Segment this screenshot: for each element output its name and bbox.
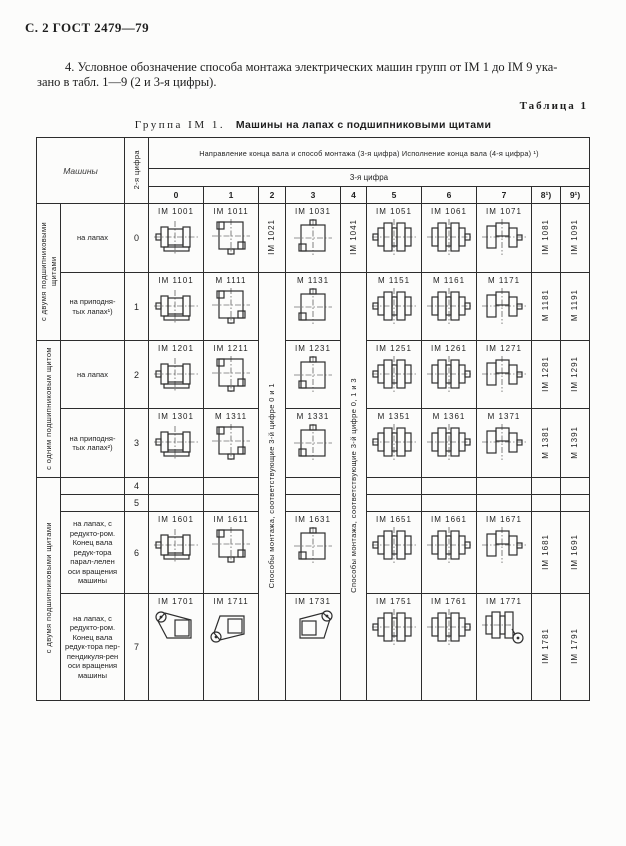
- im-cell: IM 1251: [367, 341, 422, 409]
- im-cell: IM 1061: [422, 204, 477, 273]
- motor-c-icon: [286, 422, 340, 462]
- motor-e-icon: [422, 286, 476, 326]
- row-desc-cell: на лапах, с редукто-ром. Конец вала реду…: [61, 594, 125, 701]
- im-code: IM 1791: [570, 628, 580, 664]
- im-code: IM 1601: [149, 515, 203, 524]
- im-code: IM 1671: [477, 515, 531, 524]
- table-title-prefix: Группа IM 1.: [135, 119, 225, 131]
- im-cell: IM 1211: [204, 341, 259, 409]
- motor-a-icon: [149, 525, 203, 565]
- im-cell: M 1371: [477, 409, 532, 478]
- im-code: IM 1001: [149, 207, 203, 216]
- row-digit-cell: 6: [125, 512, 149, 594]
- machine-group-label: с двумя подшипниковыми щитами: [39, 208, 59, 334]
- im-code: M 1151: [367, 276, 421, 285]
- motor-d-icon: [367, 217, 421, 257]
- im-code: M 1111: [204, 276, 258, 285]
- motor-e-icon: [422, 217, 476, 257]
- im-cell: IM 1771: [477, 594, 532, 701]
- table-row: с одним подшипниковым щитомна лапах2IM 1…: [37, 341, 590, 409]
- im-cell: M 1111: [204, 273, 259, 341]
- im-cell: M 1171: [477, 273, 532, 341]
- im-code: M 1191: [570, 289, 580, 321]
- im-code: IM 1091: [570, 219, 580, 255]
- corner-header: Машины: [37, 138, 125, 204]
- gear-d-icon: [477, 607, 531, 647]
- intro-paragraph-line1: 4. Условное обозначение способа монтажа …: [65, 60, 557, 74]
- motor-a-icon: [149, 354, 203, 394]
- im-cell: M 1151: [367, 273, 422, 341]
- motor-b-icon: [204, 354, 258, 394]
- im-cell: IM 1031: [286, 204, 341, 273]
- span-header: Направление конца вала и способ монтажа …: [149, 138, 590, 169]
- im-code: IM 1281: [541, 356, 551, 392]
- table-row: с двумя подшипниковыми щитамина лапах0IM…: [37, 204, 590, 273]
- motor-d-icon: [367, 607, 421, 647]
- motor-d-icon: [367, 525, 421, 565]
- im-code: M 1381: [541, 426, 551, 459]
- motor-e-icon: [422, 607, 476, 647]
- digit-col-header-text: 2-я цифра: [132, 150, 142, 189]
- im-cell: [204, 495, 259, 512]
- im-cell: IM 1761: [422, 594, 477, 701]
- im-code: IM 1301: [149, 412, 203, 421]
- motor-c-icon: [286, 217, 340, 257]
- im-code: M 1331: [286, 412, 340, 421]
- im-code: IM 1611: [204, 515, 258, 524]
- im-code: IM 1201: [149, 344, 203, 353]
- im-code: IM 1711: [204, 597, 258, 606]
- im-cell: IM 1201: [149, 341, 204, 409]
- im-cell: IM 1661: [422, 512, 477, 594]
- motor-d-icon: [367, 286, 421, 326]
- motor-c-icon: [286, 286, 340, 326]
- im-cell: IM 1691: [561, 512, 590, 594]
- im-code: IM 1631: [286, 515, 340, 524]
- row-desc: на лапах: [77, 370, 108, 379]
- im-cell: IM 1271: [477, 341, 532, 409]
- mounting-note: Способы монтажа, соответствующие 3-й циф…: [267, 383, 277, 588]
- row-desc: на лапах, с редукто-ром. Конец вала реду…: [65, 614, 120, 680]
- im-code: IM 1041: [349, 219, 359, 255]
- motor-a-icon: [149, 286, 203, 326]
- machine-group-cell: с двумя подшипниковыми щитами: [37, 204, 61, 341]
- im-code: IM 1231: [286, 344, 340, 353]
- mounting-table: Машины 2-я цифра Направление конца вала …: [36, 137, 590, 701]
- row-digit: 3: [134, 438, 139, 448]
- row-desc-cell: [61, 495, 125, 512]
- im-cell: IM 1711: [204, 594, 259, 701]
- mounting-note-cell: Способы монтажа, соответствующие 3-й циф…: [341, 273, 367, 701]
- im-cell: IM 1301: [149, 409, 204, 478]
- im-cell: M 1381: [532, 409, 561, 478]
- table-row: на приподня-тых лапах¹)1IM 1101M 1111Спо…: [37, 273, 590, 341]
- im-code: IM 1691: [570, 534, 580, 570]
- im-code: M 1311: [204, 412, 258, 421]
- im-code: IM 1781: [541, 628, 551, 664]
- im-cell: M 1161: [422, 273, 477, 341]
- im-cell: M 1351: [367, 409, 422, 478]
- table-body: Машины 2-я цифра Направление конца вала …: [37, 138, 590, 701]
- digit-col-header: 2-я цифра: [125, 138, 149, 204]
- im-code-cell: IM 1021: [259, 204, 286, 273]
- im-code: IM 1061: [422, 207, 476, 216]
- im-code: IM 1021: [267, 219, 277, 255]
- motor-d-icon: [367, 354, 421, 394]
- motor-a-icon: [149, 422, 203, 462]
- im-code: IM 1751: [367, 597, 421, 606]
- machine-group-label: с двумя подшипниковыми щитами: [44, 522, 54, 653]
- im-cell: IM 1091: [561, 204, 590, 273]
- im-cell: IM 1631: [286, 512, 341, 594]
- im-cell: IM 1731: [286, 594, 341, 701]
- im-cell: IM 1051: [367, 204, 422, 273]
- col-number: 9¹): [561, 187, 590, 204]
- col-number: 4: [341, 187, 367, 204]
- row-desc-cell: на приподня-тых лапах²): [61, 409, 125, 478]
- im-cell: [532, 478, 561, 495]
- im-code: M 1161: [422, 276, 476, 285]
- im-code: IM 1031: [286, 207, 340, 216]
- table-row: на лапах, с редукто-ром. Конец вала реду…: [37, 594, 590, 701]
- im-cell: M 1391: [561, 409, 590, 478]
- im-cell: [477, 478, 532, 495]
- im-cell: IM 1681: [532, 512, 561, 594]
- row-digit-cell: 5: [125, 495, 149, 512]
- im-code: IM 1761: [422, 597, 476, 606]
- row-digit-cell: 3: [125, 409, 149, 478]
- motor-b-icon: [204, 217, 258, 257]
- row-digit-cell: 7: [125, 594, 149, 701]
- im-cell: [286, 495, 341, 512]
- gear-a-icon: [149, 607, 203, 647]
- row-desc: на лапах: [77, 233, 108, 242]
- motor-f-icon: [477, 286, 531, 326]
- table-title-main: Машины на лапах с подшипниковыми щитами: [236, 119, 491, 131]
- im-cell: IM 1671: [477, 512, 532, 594]
- im-cell: IM 1611: [204, 512, 259, 594]
- row-desc: на лапах, с редукто-ром. Конец вала реду…: [68, 519, 117, 585]
- im-cell: IM 1701: [149, 594, 204, 701]
- im-cell: IM 1651: [367, 512, 422, 594]
- row-digit: 2: [134, 370, 139, 380]
- col-number: 2: [259, 187, 286, 204]
- im-code: IM 1701: [149, 597, 203, 606]
- im-cell: IM 1601: [149, 512, 204, 594]
- im-cell: IM 1081: [532, 204, 561, 273]
- im-cell: IM 1291: [561, 341, 590, 409]
- col-number: 3: [286, 187, 341, 204]
- im-cell: IM 1001: [149, 204, 204, 273]
- col-number: 7: [477, 187, 532, 204]
- machine-group-label: с одним подшипниковым щитом: [44, 347, 54, 470]
- im-cell: M 1361: [422, 409, 477, 478]
- im-cell: IM 1751: [367, 594, 422, 701]
- im-cell: [422, 495, 477, 512]
- im-code: IM 1651: [367, 515, 421, 524]
- im-code-cell: IM 1041: [341, 204, 367, 273]
- im-cell: [532, 495, 561, 512]
- motor-b-icon: [204, 422, 258, 462]
- row-desc-cell: на лапах: [61, 341, 125, 409]
- header-row-1: Машины 2-я цифра Направление конца вала …: [37, 138, 590, 169]
- im-cell: IM 1281: [532, 341, 561, 409]
- row-desc-cell: на лапах: [61, 204, 125, 273]
- im-code: M 1131: [286, 276, 340, 285]
- row-desc: на приподня-тых лапах²): [70, 434, 116, 453]
- im-code: IM 1261: [422, 344, 476, 353]
- im-cell: IM 1261: [422, 341, 477, 409]
- im-code: IM 1011: [204, 207, 258, 216]
- row-digit: 4: [134, 481, 139, 491]
- table-number-label: Таблица 1: [0, 100, 588, 112]
- mounting-note: Способы монтажа, соответствующие 3-й циф…: [349, 378, 359, 593]
- row-digit-cell: 4: [125, 478, 149, 495]
- im-code: IM 1291: [570, 356, 580, 392]
- im-cell: [561, 478, 590, 495]
- machine-group-cell: с одним подшипниковым щитом: [37, 341, 61, 478]
- row-digit-cell: 0: [125, 204, 149, 273]
- im-code: M 1371: [477, 412, 531, 421]
- col-number: 6: [422, 187, 477, 204]
- motor-c-icon: [286, 525, 340, 565]
- row-digit: 0: [134, 233, 139, 243]
- im-code: IM 1681: [541, 534, 551, 570]
- table-row: на приподня-тых лапах²)3IM 1301M 1311M 1…: [37, 409, 590, 478]
- im-cell: M 1131: [286, 273, 341, 341]
- im-cell: IM 1101: [149, 273, 204, 341]
- sub-header: 3-я цифра: [149, 169, 590, 187]
- table-row: 5: [37, 495, 590, 512]
- im-cell: IM 1231: [286, 341, 341, 409]
- motor-e-icon: [422, 422, 476, 462]
- row-digit: 7: [134, 642, 139, 652]
- im-code: M 1181: [541, 289, 551, 321]
- motor-a-icon: [149, 217, 203, 257]
- im-code: IM 1081: [541, 219, 551, 255]
- im-cell: M 1311: [204, 409, 259, 478]
- intro-paragraph-line2: зано в табл. 1—9 (2 и 3-я цифры).: [37, 75, 216, 89]
- im-cell: IM 1791: [561, 594, 590, 701]
- im-code: M 1351: [367, 412, 421, 421]
- row-digit: 1: [134, 302, 139, 312]
- row-desc: на приподня-тых лапах¹): [70, 297, 116, 316]
- row-digit-cell: 1: [125, 273, 149, 341]
- im-code: IM 1731: [286, 597, 340, 606]
- row-desc-cell: на лапах, с редукто-ром. Конец вала реду…: [61, 512, 125, 594]
- col-number: 0: [149, 187, 204, 204]
- motor-b-icon: [204, 286, 258, 326]
- im-cell: M 1331: [286, 409, 341, 478]
- row-digit: 6: [134, 548, 139, 558]
- row-digit-cell: 2: [125, 341, 149, 409]
- motor-d-icon: [367, 422, 421, 462]
- im-cell: [286, 478, 341, 495]
- im-cell: [204, 478, 259, 495]
- col-number: 5: [367, 187, 422, 204]
- im-code: IM 1251: [367, 344, 421, 353]
- motor-b-icon: [204, 525, 258, 565]
- row-desc-cell: на приподня-тых лапах¹): [61, 273, 125, 341]
- im-cell: M 1191: [561, 273, 590, 341]
- motor-f-icon: [477, 354, 531, 394]
- col-number: 1: [204, 187, 259, 204]
- im-cell: IM 1011: [204, 204, 259, 273]
- row-digit: 5: [134, 498, 139, 508]
- gear-b-icon: [204, 607, 258, 647]
- motor-c-icon: [286, 354, 340, 394]
- intro-paragraph: 4. Условное обозначение способа монтажа …: [37, 60, 590, 90]
- im-cell: [367, 495, 422, 512]
- motor-e-icon: [422, 525, 476, 565]
- im-cell: [477, 495, 532, 512]
- im-code: M 1361: [422, 412, 476, 421]
- motor-f-icon: [477, 217, 531, 257]
- motor-f-icon: [477, 422, 531, 462]
- im-code: IM 1051: [367, 207, 421, 216]
- machine-group-cell: с двумя подшипниковыми щитами: [37, 478, 61, 701]
- im-cell: [561, 495, 590, 512]
- mounting-note-cell: Способы монтажа, соответствующие 3-й циф…: [259, 273, 286, 701]
- motor-f-icon: [477, 525, 531, 565]
- im-code: M 1391: [570, 426, 580, 459]
- im-cell: [149, 478, 204, 495]
- im-code: IM 1271: [477, 344, 531, 353]
- im-code: IM 1101: [149, 276, 203, 285]
- table-row: на лапах, с редукто-ром. Конец вала реду…: [37, 512, 590, 594]
- im-cell: IM 1071: [477, 204, 532, 273]
- im-cell: [422, 478, 477, 495]
- motor-e-icon: [422, 354, 476, 394]
- table-title: Группа IM 1. Машины на лапах с подшипник…: [0, 119, 626, 131]
- row-desc-cell: [61, 478, 125, 495]
- im-cell: [149, 495, 204, 512]
- im-cell: M 1181: [532, 273, 561, 341]
- im-code: IM 1661: [422, 515, 476, 524]
- document-page: С. 2 ГОСТ 2479—79 4. Условное обозначени…: [0, 0, 626, 846]
- im-code: IM 1771: [477, 597, 531, 606]
- gear-c-icon: [286, 607, 340, 647]
- col-number: 8¹): [532, 187, 561, 204]
- im-cell: IM 1781: [532, 594, 561, 701]
- page-header: С. 2 ГОСТ 2479—79: [25, 20, 626, 36]
- im-code: IM 1211: [204, 344, 258, 353]
- table-row: с двумя подшипниковыми щитами4: [37, 478, 590, 495]
- im-code: M 1171: [477, 276, 531, 285]
- im-cell: [367, 478, 422, 495]
- im-code: IM 1071: [477, 207, 531, 216]
